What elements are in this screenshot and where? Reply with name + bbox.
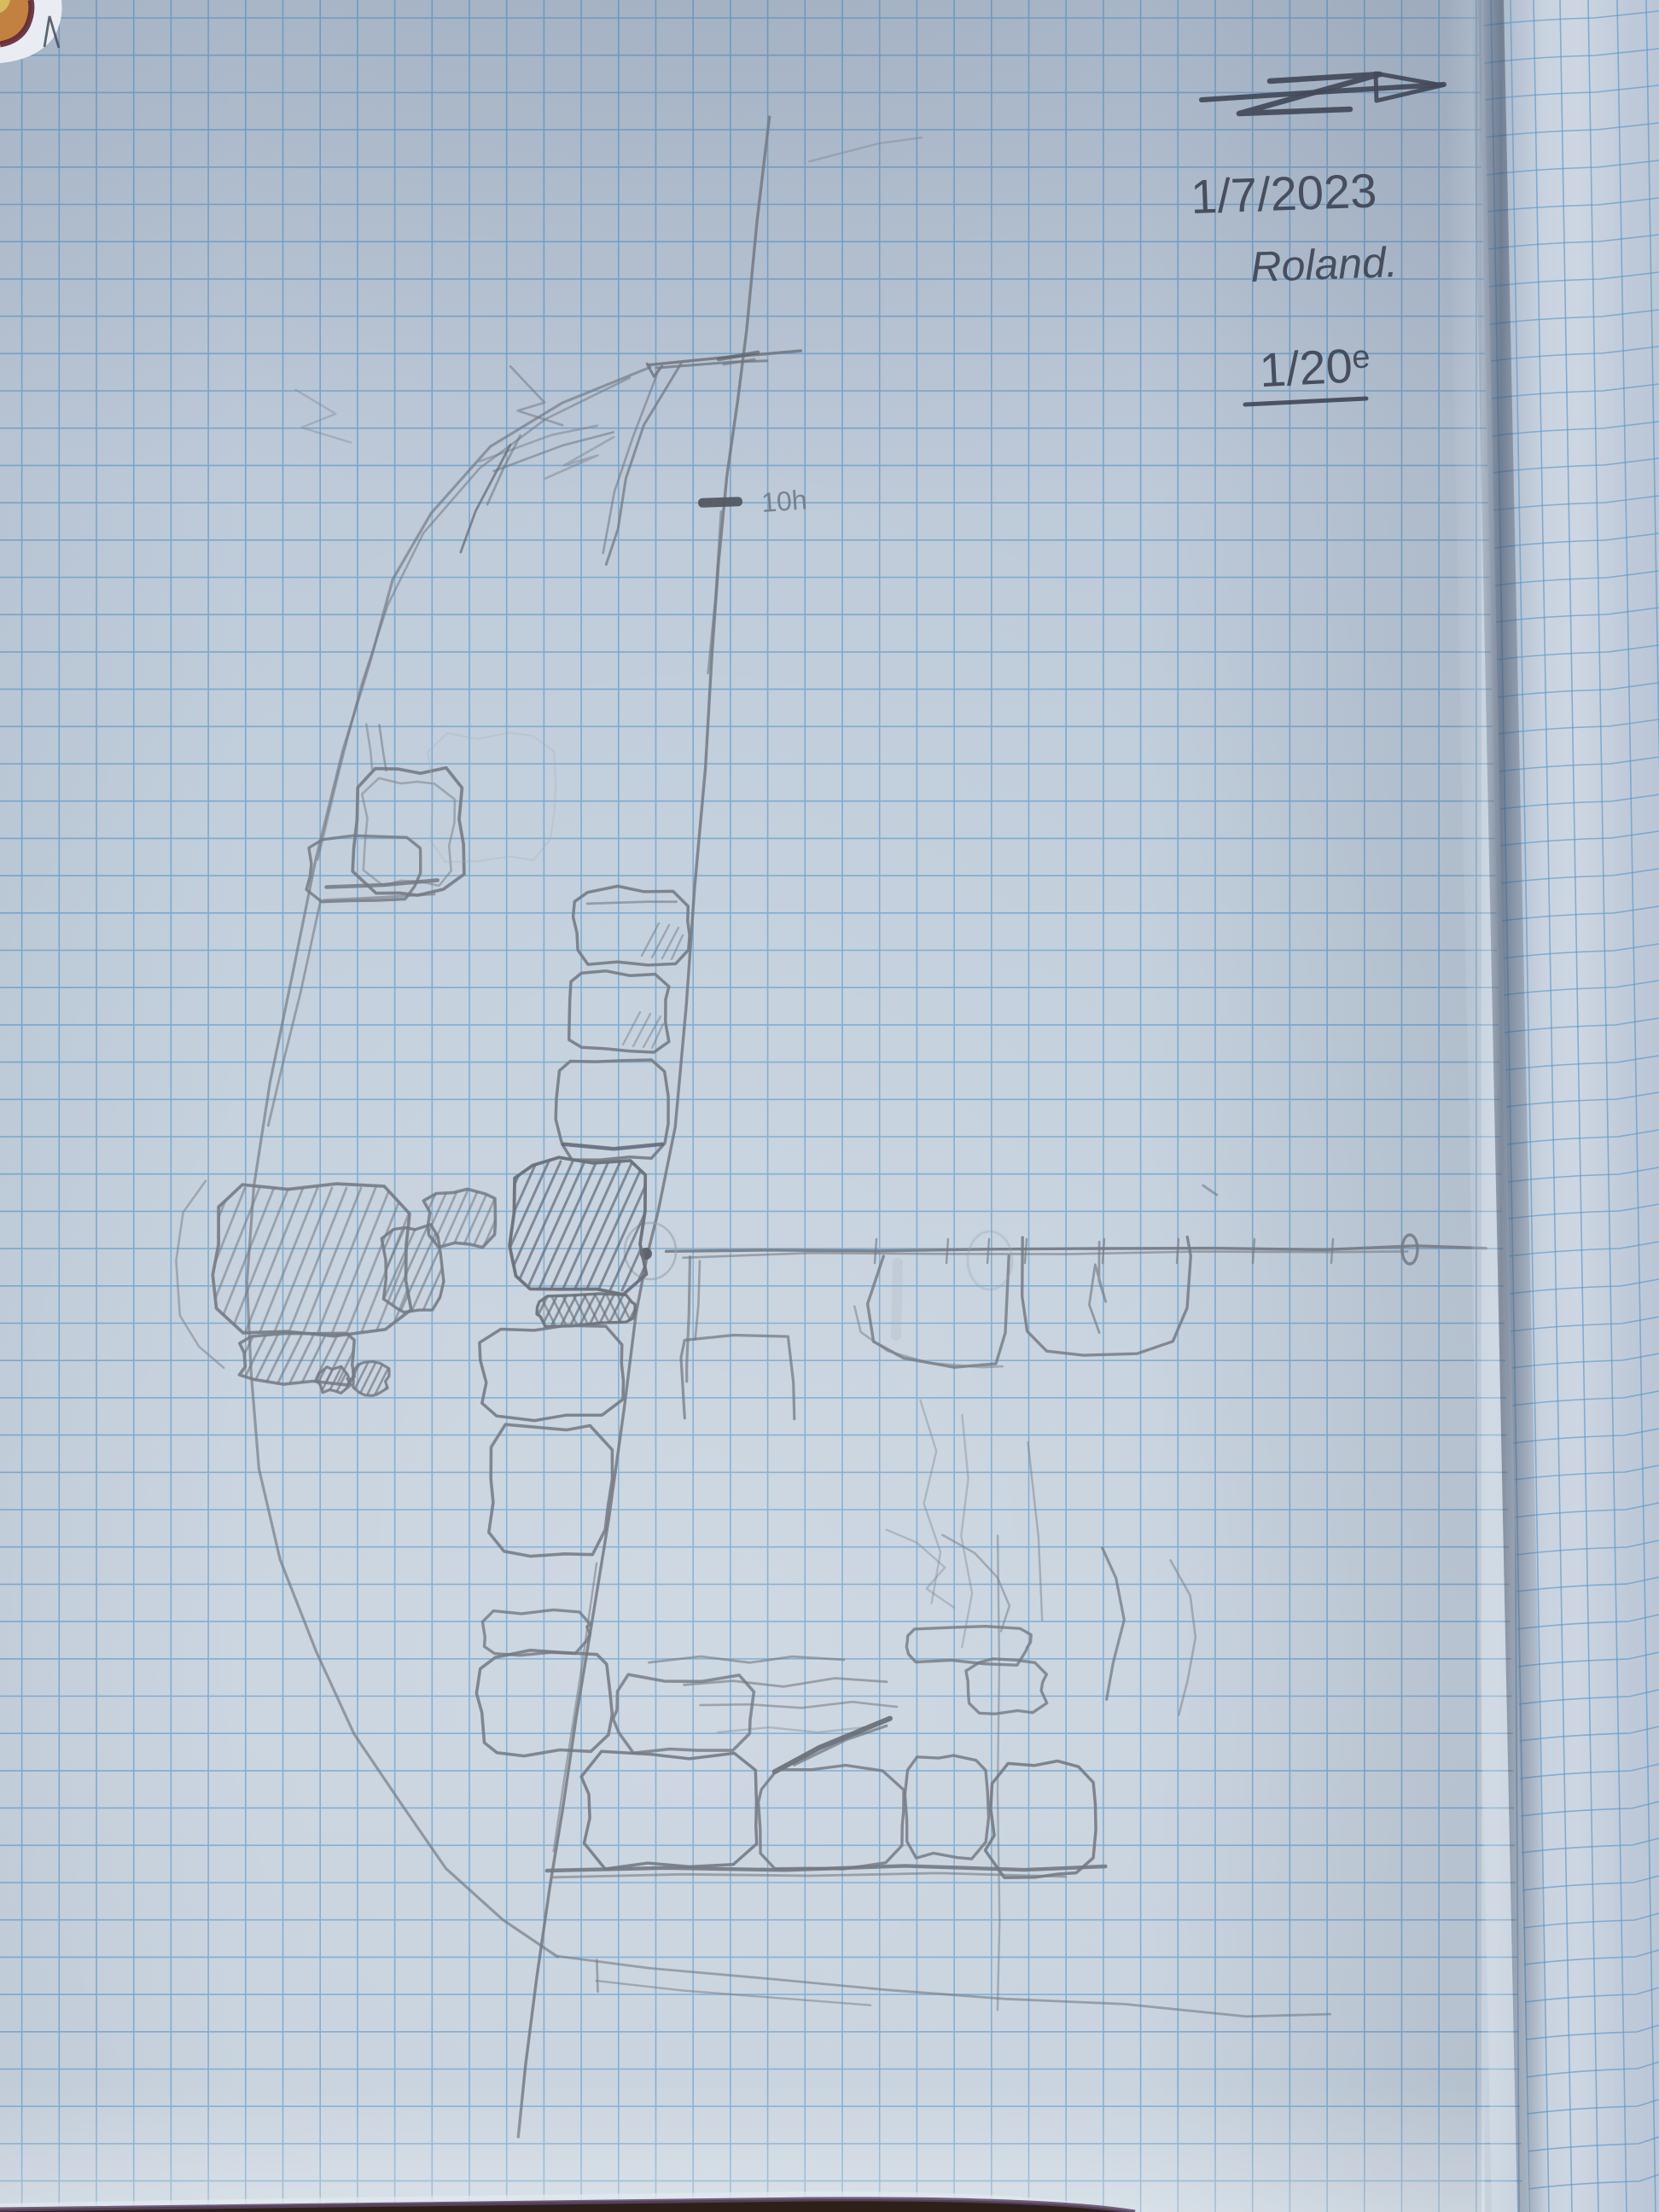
svg-text:1/7/2023: 1/7/2023 xyxy=(1190,163,1377,224)
svg-text:Roland.: Roland. xyxy=(1249,238,1398,291)
svg-text:10h: 10h xyxy=(760,484,808,518)
